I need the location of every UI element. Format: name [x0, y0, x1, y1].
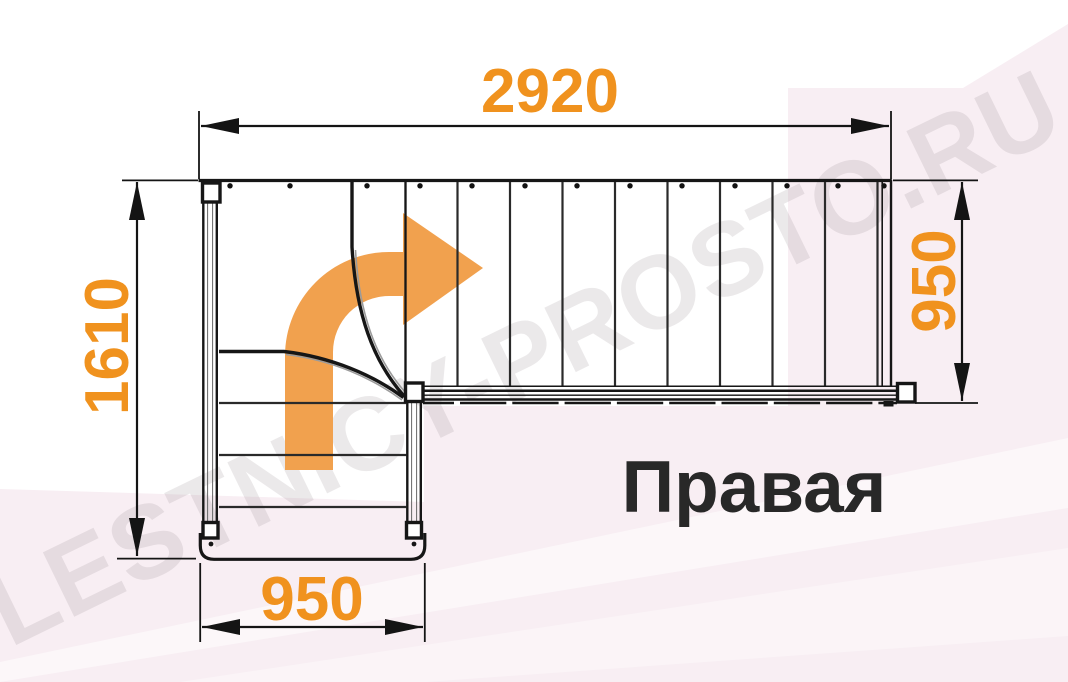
baluster-dot [287, 183, 292, 188]
post-bottom-right [407, 523, 422, 539]
dimension-top-width-value: 2920 [481, 57, 619, 126]
baluster-dot [469, 183, 474, 188]
post-center [406, 383, 424, 402]
baluster-dot [417, 183, 422, 188]
baluster-dot [574, 183, 579, 188]
post-dot-left [209, 542, 214, 547]
orientation-label: Правая [622, 447, 887, 528]
dimension-bottom-width-value: 950 [260, 565, 363, 634]
dimension-left-height-value: 1610 [73, 277, 142, 415]
baluster-dot [732, 183, 737, 188]
baluster-dot [835, 183, 840, 188]
baluster-dot [227, 183, 232, 188]
post-dot-right [412, 542, 417, 547]
baluster-dot [784, 183, 789, 188]
baluster-dot [679, 183, 684, 188]
dimension-right-height-value: 950 [900, 229, 969, 332]
staircase-diagram: LESTNICY-PROSTO.RU [0, 0, 1068, 682]
post-far-right [898, 384, 916, 403]
staircase-plan-drawing: LESTNICY-PROSTO.RU [0, 0, 1068, 682]
baluster-dot [364, 183, 369, 188]
baluster-dot [522, 183, 527, 188]
post-bottom-left [203, 523, 218, 539]
post-top-left [203, 183, 221, 202]
baluster-dot [627, 183, 632, 188]
stringer-end-tab [884, 401, 894, 407]
